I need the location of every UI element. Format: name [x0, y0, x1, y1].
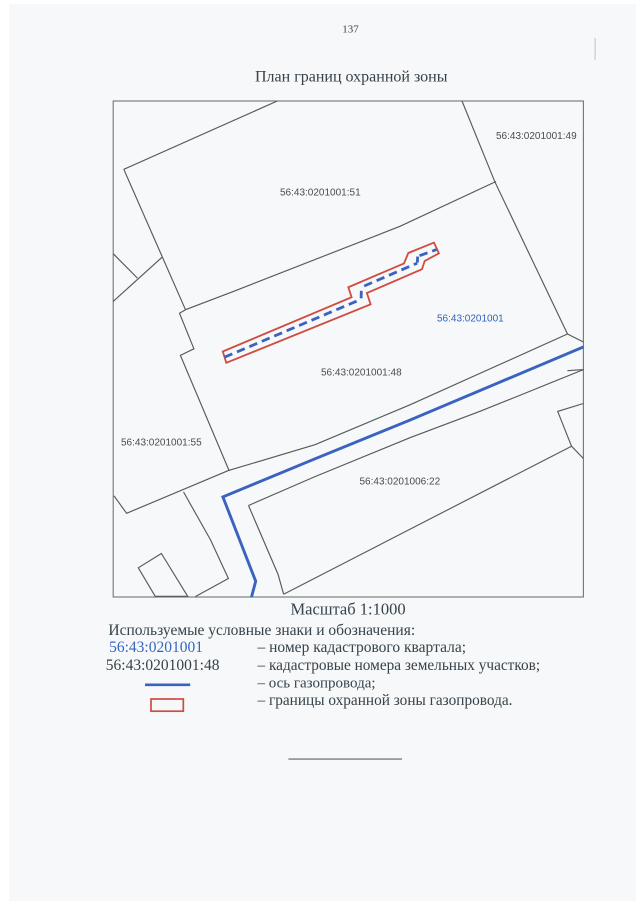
svg-text:56:43:0201001:55: 56:43:0201001:55 — [121, 438, 202, 449]
svg-text:Масштаб 1:1000: Масштаб 1:1000 — [291, 600, 406, 619]
svg-text:– границы охранной зоны газопр: – границы охранной зоны газопровода. — [257, 692, 513, 709]
svg-text:– кадастровые номера земельных: – кадастровые номера земельных участков; — [257, 657, 541, 674]
svg-text:56:43:0201001: 56:43:0201001 — [437, 314, 504, 325]
svg-text:Используемые условные знаки и: Используемые условные знаки и обозначени… — [108, 622, 415, 639]
svg-text:– ось газопровода;: – ось газопровода; — [257, 676, 376, 692]
svg-text:56:43:0201001:48: 56:43:0201001:48 — [106, 657, 220, 674]
svg-text:56:43:0201001: 56:43:0201001 — [109, 639, 203, 656]
svg-text:137: 137 — [342, 24, 359, 36]
svg-text:План границ охранной зоны: План границ охранной зоны — [255, 69, 448, 86]
svg-text:– номер кадастрового квартала;: – номер кадастрового квартала; — [257, 639, 467, 656]
svg-text:56:43:0201006:22: 56:43:0201006:22 — [360, 477, 441, 488]
svg-text:56:43:0201001:51: 56:43:0201001:51 — [280, 188, 361, 199]
svg-text:56:43:0201001:48: 56:43:0201001:48 — [321, 368, 402, 379]
svg-text:56:43:0201001:49: 56:43:0201001:49 — [496, 131, 577, 142]
